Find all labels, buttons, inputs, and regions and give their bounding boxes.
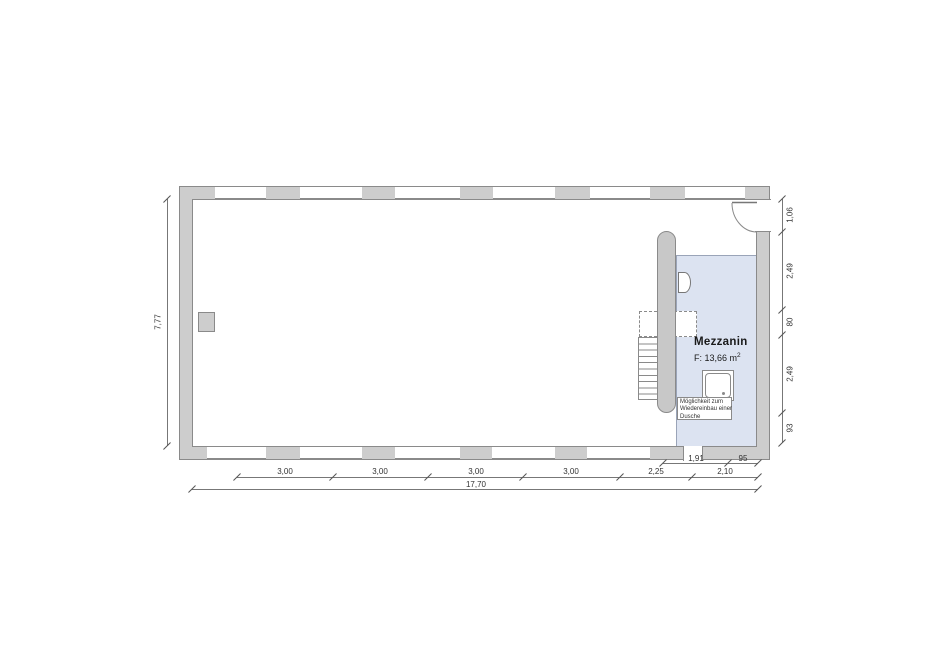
dim-label: 7,77 [154,314,163,330]
note-line: Möglichkeit zum [680,399,729,406]
room-area-label: F: 13,66 m2 [694,352,741,363]
dim-label: 2,25 [648,467,664,476]
dimension-line-total-width [192,489,758,490]
dim-label: 1,91 [688,454,704,463]
door-swing-arc [0,0,950,671]
dim-label: 3,00 [468,467,484,476]
dimension-line-right-chain [782,199,783,443]
note-line: Wiedereinbau einer [680,406,729,413]
dim-label: 93 [786,424,795,433]
dim-label: 80 [786,318,795,327]
floor-plan-canvas: Mezzanin F: 13,66 m2 Möglichkeit zum Wie… [0,0,950,671]
dim-label: 17,70 [466,480,486,489]
dim-label: 3,00 [563,467,579,476]
dimension-line-bottom-sub [663,463,758,464]
room-area-value: F: 13,66 m [694,353,737,363]
dim-label: 3,00 [277,467,293,476]
room-area-sup: 2 [737,352,741,359]
dimension-line-bottom-chain [237,477,758,478]
dimension-line-left-height [167,199,168,446]
dim-label: 95 [739,454,748,463]
room-name-label: Mezzanin [694,336,748,348]
dim-label: 2,49 [786,263,795,279]
shower-note: Möglichkeit zum Wiedereinbau einer Dusch… [677,397,732,420]
dim-label: 2,10 [717,467,733,476]
dim-label: 3,00 [372,467,388,476]
dim-label: 2,49 [786,366,795,382]
note-line: Dusche [680,414,729,421]
dim-label: 1,06 [786,207,795,223]
